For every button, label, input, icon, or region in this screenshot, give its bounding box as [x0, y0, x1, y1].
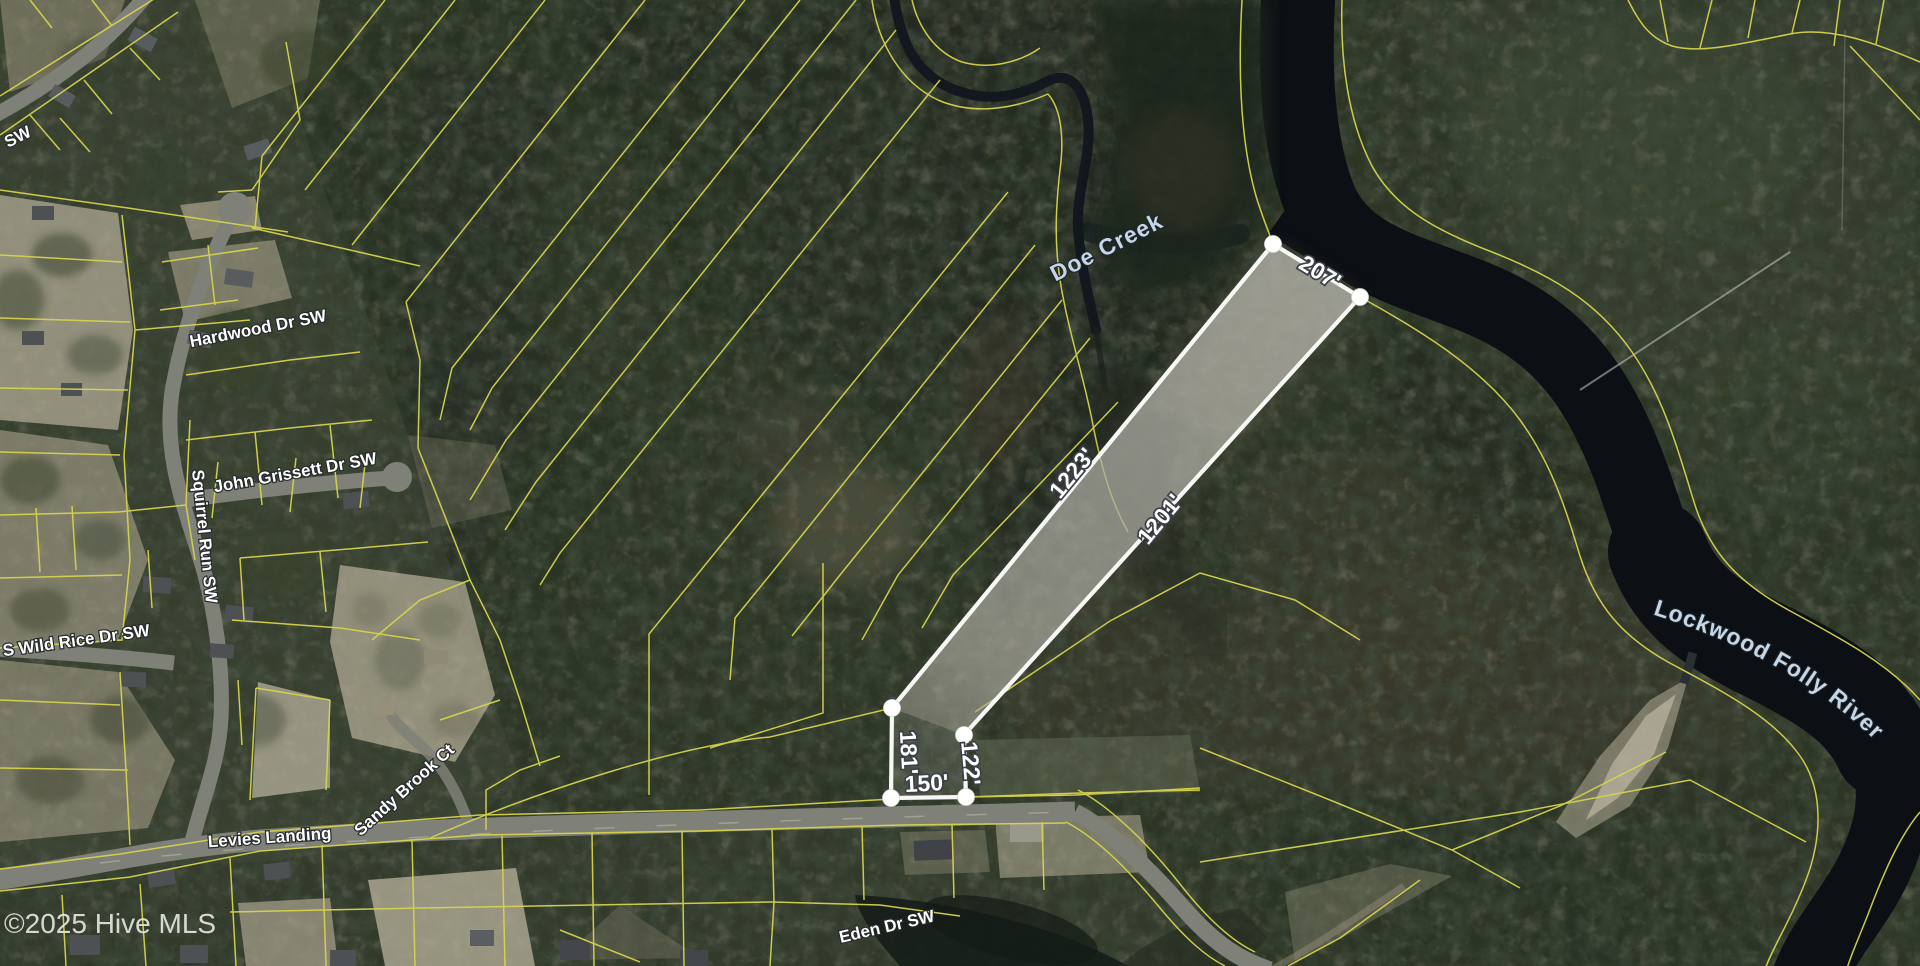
svg-text:150': 150': [904, 769, 949, 797]
svg-text:©2025 Hive MLS: ©2025 Hive MLS: [4, 908, 216, 939]
svg-text:122': 122': [956, 740, 986, 786]
svg-text:181': 181': [895, 730, 923, 775]
